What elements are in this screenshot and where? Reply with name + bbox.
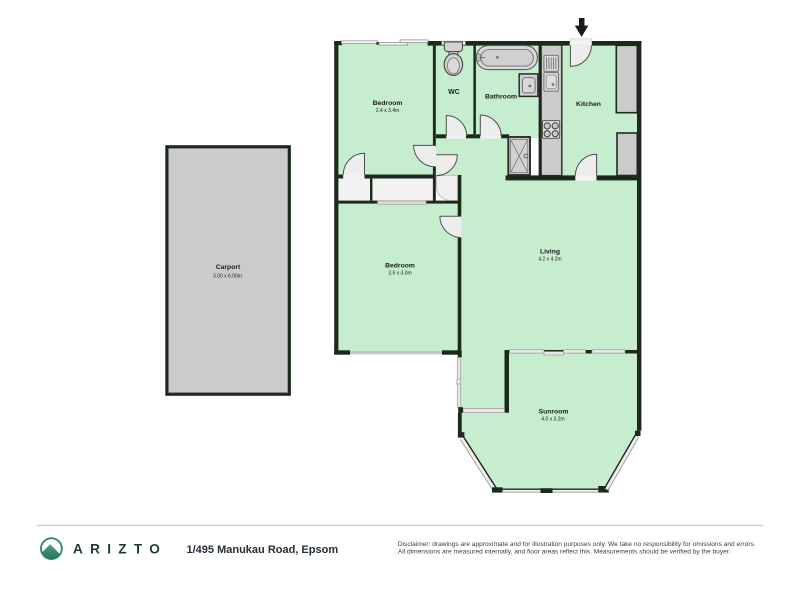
svg-text:Living: Living bbox=[540, 248, 560, 255]
svg-text:Kitchen: Kitchen bbox=[576, 101, 601, 108]
svg-text:4.0 x 3.2m: 4.0 x 3.2m bbox=[541, 416, 564, 422]
svg-text:Bedroom: Bedroom bbox=[373, 100, 403, 107]
svg-text:Disclaimer: drawings are appro: Disclaimer: drawings are approximate and… bbox=[398, 541, 756, 548]
svg-text:Carport: Carport bbox=[216, 264, 241, 271]
svg-text:Bathroom: Bathroom bbox=[485, 94, 517, 101]
svg-text:All dimensions are measured in: All dimensions are measured internally, … bbox=[398, 548, 731, 555]
svg-text:3.6 x 3.0m: 3.6 x 3.0m bbox=[388, 270, 411, 276]
svg-text:4.2 x 4.2m: 4.2 x 4.2m bbox=[538, 256, 561, 262]
svg-text:Sunroom: Sunroom bbox=[539, 408, 569, 415]
svg-text:Bedroom: Bedroom bbox=[385, 262, 415, 269]
svg-text:2.4 x 3.4m: 2.4 x 3.4m bbox=[376, 108, 399, 114]
svg-text:3.00 x 6.00m: 3.00 x 6.00m bbox=[213, 274, 242, 280]
svg-text:1/495 Manukau Road, Epsom: 1/495 Manukau Road, Epsom bbox=[187, 544, 339, 556]
svg-text:WC: WC bbox=[448, 89, 460, 96]
svg-text:ARIZTO: ARIZTO bbox=[73, 542, 167, 557]
